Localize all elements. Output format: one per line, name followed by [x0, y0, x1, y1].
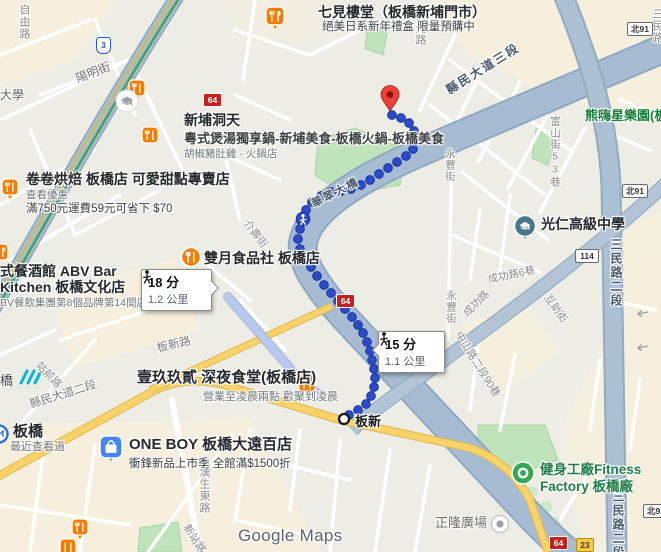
poi-university[interactable]: 大學 [0, 86, 24, 103]
poi-xinpu-dongtian-line2[interactable]: 粵式煲湯獨享鍋-新埔美食-板橋火鍋-板橋美食 [184, 128, 444, 147]
road-label-fushan53: 富山街53巷 [548, 116, 563, 188]
poi-xinpu-dongtian-sub: 胡椒豬肚雞 - 火鍋店 [184, 146, 277, 161]
poi-yijiujiuer-sub: 營業至凌晨兩點 歡聚到凌晨 [203, 388, 338, 404]
walking-icon [142, 270, 152, 284]
plaza-icon[interactable] [492, 516, 509, 533]
poi-qijianloutang-promo: 絕美日系新年禮盒 限量預購中 [322, 18, 475, 34]
highway-shield-64: 64 [336, 294, 355, 308]
poi-xionghai[interactable]: 熊嗨星樂園(板橋店) [585, 105, 661, 124]
poi-oneboy-promo: 衝鋒新品上市季 全館滿$1500折 [129, 455, 291, 471]
road-label-sanmin2-south: 三民路二段 [610, 490, 627, 552]
walking-icon [379, 332, 389, 346]
road-label-yongfeng-n: 永豐街 [443, 148, 458, 183]
poi-zhenglong[interactable]: 正隆廣場 [435, 512, 487, 531]
shopping-bag-icon[interactable] [100, 436, 122, 461]
road-label-hansheng: 漢生東路 [196, 466, 212, 514]
poi-qiao-clipped: 橋 [0, 370, 13, 389]
metro-station-icon[interactable] [0, 426, 8, 443]
poi-yijiujiuer[interactable]: 壹玖玖貳 深夜食堂(板橋店) [137, 366, 316, 387]
restaurant-icon[interactable] [60, 539, 76, 552]
destination-pin[interactable] [381, 86, 399, 112]
poi-abv-bar-line2[interactable]: Kitchen 板橋文化店 [0, 277, 125, 297]
highway-shield-64: 64 [203, 93, 222, 107]
route-shield-23: 23 [576, 538, 594, 552]
poi-shuangyue[interactable]: 雙月食品社 板橋店 [204, 248, 320, 268]
duration-text: 15 分 [385, 334, 416, 353]
origin-stop-marker[interactable] [339, 414, 349, 424]
school-icon[interactable] [515, 216, 536, 240]
route-shield-n92: 北92 [643, 504, 661, 518]
highway-shield-64: 64 [549, 536, 568, 550]
restaurant-icon[interactable] [182, 248, 201, 267]
route-walk-node [296, 212, 310, 226]
road-label-sanmin2: 三民路二段 [608, 238, 625, 308]
road-label-yongfeng-s: 永豐街 [444, 290, 459, 325]
duration-text: 18 分 [148, 272, 179, 291]
route-shield-114: 114 [575, 249, 599, 263]
poi-oneboy[interactable]: ONE BOY 板橋大遠百店 [129, 433, 292, 454]
origin-stop-label[interactable]: 板新 [355, 411, 381, 430]
restaurant-icon[interactable] [0, 244, 8, 260]
restaurant-icon[interactable] [142, 127, 158, 143]
distance-text: 1.1 公里 [385, 353, 437, 369]
highway-shield-3: 3 [96, 37, 111, 54]
poi-banqiao-station-sub: 最近查看過 [10, 438, 65, 454]
distance-text: 1.2 公里 [148, 291, 204, 307]
poi-abv-bar-sub: BV餐飲集團第8個品牌第14間店 [0, 295, 147, 310]
poi-fitness-line2[interactable]: Factory 板橋廠 [540, 475, 633, 495]
poi-juanjuan[interactable]: 卷卷烘焙 板橋店 可愛甜點專賣店 [26, 169, 230, 189]
poi-xinpu-dongtian[interactable]: 新埔洞天 [184, 110, 240, 130]
map-canvas[interactable]: 自由路 陽明街 莒光路 縣民大道三段 華翠大橋 介壽街 永豐街 富山街53巷 三… [0, 0, 661, 552]
route-shield-n91: 北91 [627, 22, 653, 36]
road-label-ziyou: 自由路 [16, 4, 32, 40]
route-bubble-15min[interactable]: 15 分 1.1 公里 [378, 331, 445, 373]
route-bubble-18min[interactable]: 18 分 1.2 公里 [141, 269, 212, 311]
google-maps-watermark: Google Maps [238, 526, 342, 546]
poi-guangren-school[interactable]: 光仁高級中學 [541, 214, 625, 234]
route-shield-n91: 北91 [622, 184, 648, 198]
poi-juanjuan-promo: 滿750元運費59元可省下 $70 [26, 200, 172, 216]
